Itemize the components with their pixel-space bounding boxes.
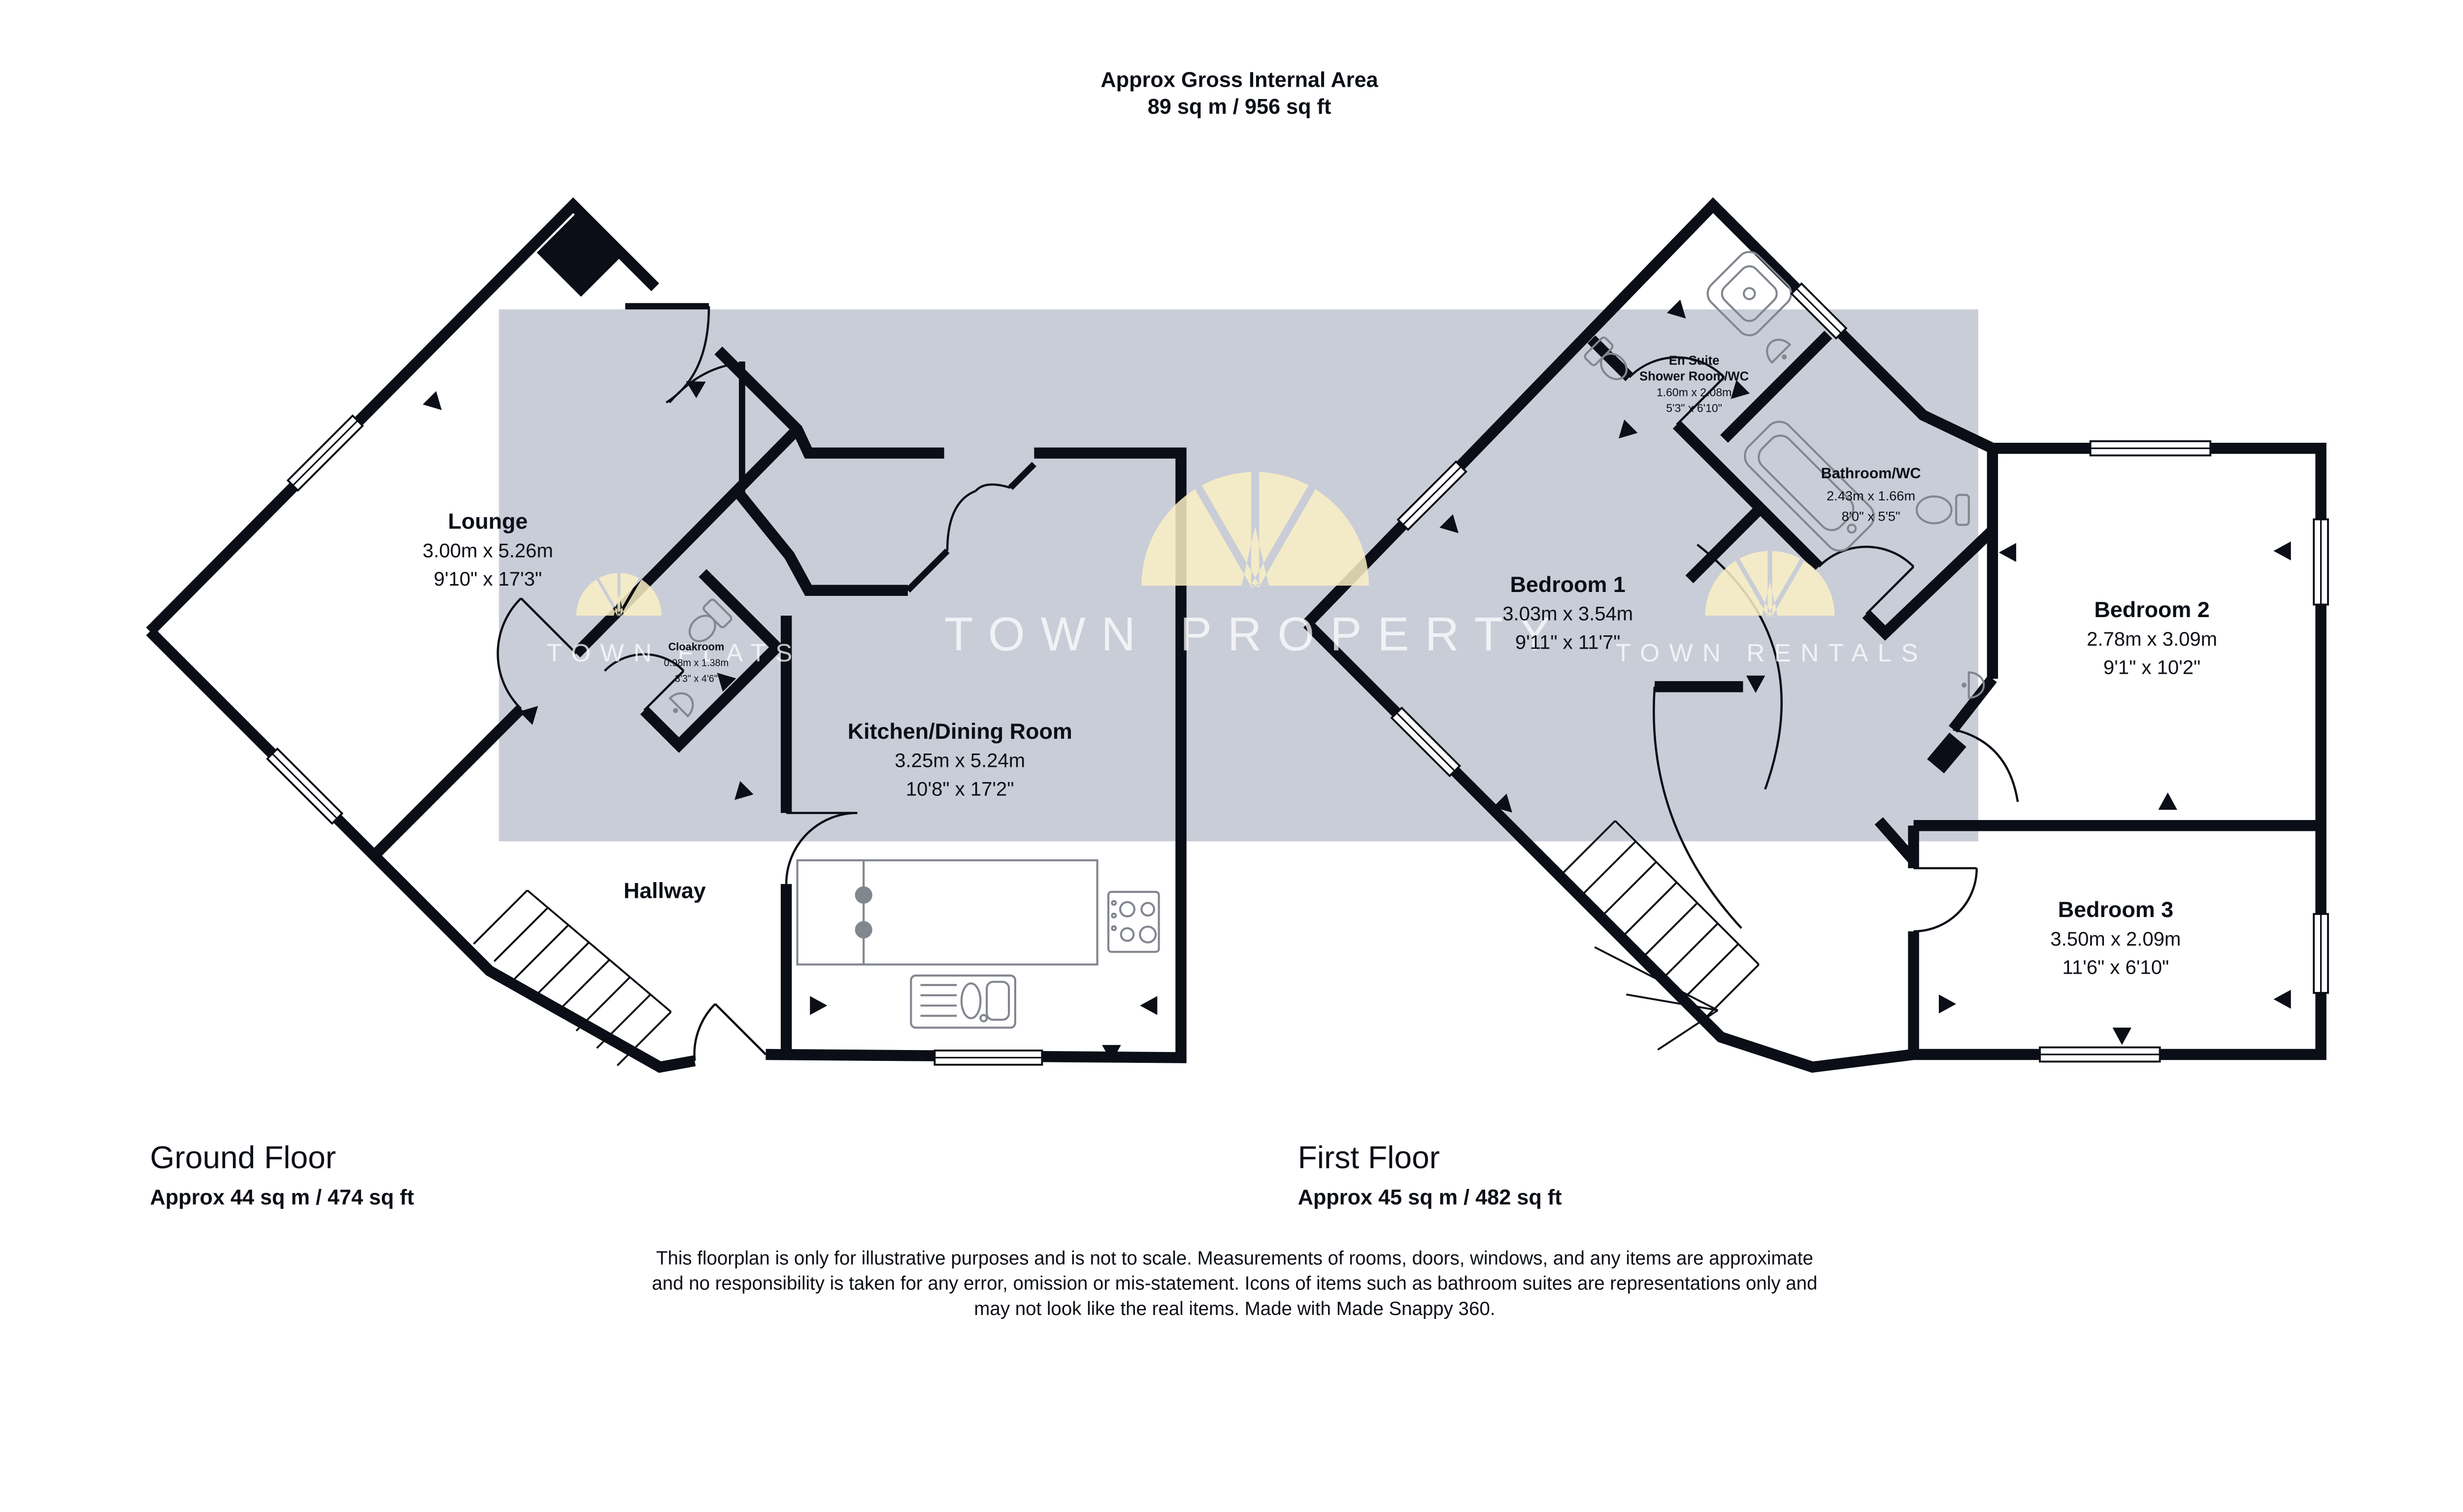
room-dims-kitchen-metric: 3.25m x 5.24m	[895, 750, 1025, 772]
window	[2040, 1048, 2160, 1062]
window	[2314, 519, 2328, 604]
door-arrow-icon	[2273, 541, 2291, 560]
disclaimer-line2: and no responsibility is taken for any e…	[652, 1273, 1817, 1294]
floorplan-page: TOWN FLATS TOWN PROPERTY TOWN RENTALS Lo…	[0, 0, 2463, 1348]
first-floor-label: First Floor	[1298, 1140, 1440, 1175]
ground-floor-area: Approx 44 sq m / 474 sq ft	[150, 1186, 414, 1210]
room-name-bedroom1: Bedroom 1	[1510, 572, 1626, 597]
door-arrow-icon	[1999, 543, 2016, 562]
footer: Ground Floor Approx 44 sq m / 474 sq ft …	[150, 1140, 1817, 1319]
room-dims-bedroom1-imperial: 9'11" x 11'7"	[1515, 631, 1621, 653]
room-name-bathroom: Bathroom/WC	[1821, 465, 1921, 482]
window	[288, 416, 363, 491]
watermark-right: TOWN RENTALS	[1615, 639, 1927, 667]
room-dims-lounge-imperial: 9'10" x 17'3"	[434, 568, 542, 590]
door-arrow-icon	[2273, 990, 2291, 1009]
room-dims-bathroom-imperial: 8'0" x 5'5"	[1842, 509, 1900, 524]
room-dims-bedroom3-imperial: 11'6" x 6'10"	[2063, 957, 2169, 979]
disclaimer-line1: This floorplan is only for illustrative …	[656, 1248, 1813, 1269]
bedroom3-door-arc	[1914, 868, 1977, 931]
first-floor-area: Approx 45 sq m / 482 sq ft	[1298, 1186, 1562, 1210]
header: Approx Gross Internal Area 89 sq m / 956…	[1100, 68, 1378, 118]
window	[2091, 441, 2211, 456]
room-dims-cloakroom-imperial: 3'3" x 4'6"	[675, 674, 718, 685]
room-dims-lounge-metric: 3.00m x 5.26m	[423, 540, 553, 561]
kitchen-table	[798, 860, 1098, 965]
room-dims-bedroom1-metric: 3.03m x 3.54m	[1502, 603, 1633, 625]
watermark-center: TOWN PROPERTY	[944, 608, 1566, 661]
door-arrow-icon	[1140, 996, 1157, 1015]
room-name-ensuite-line2: Shower Room/WC	[1639, 369, 1749, 383]
room-name-bedroom3: Bedroom 3	[2058, 897, 2173, 922]
hob-icon	[1108, 892, 1159, 952]
door-arrow-icon	[810, 996, 827, 1015]
page-title-line2: 89 sq m / 956 sq ft	[1148, 95, 1331, 119]
room-name-lounge: Lounge	[448, 509, 528, 534]
window	[2314, 914, 2328, 993]
window	[267, 749, 342, 823]
room-name-bedroom2: Bedroom 2	[2094, 597, 2209, 622]
room-name-ensuite-line1: En Suite	[1669, 354, 1720, 367]
door-arrow-icon	[2112, 1028, 2131, 1045]
kitchen-sink-icon	[911, 976, 1015, 1028]
disclaimer-line3: may not look like the real items. Made w…	[974, 1298, 1495, 1319]
room-dims-bathroom-metric: 2.43m x 1.66m	[1827, 488, 1915, 503]
room-name-cloakroom: Cloakroom	[668, 641, 725, 653]
floorplan-image: TOWN FLATS TOWN PROPERTY TOWN RENTALS Lo…	[0, 0, 2463, 1348]
room-name-kitchen: Kitchen/Dining Room	[848, 719, 1072, 744]
front-door-arc	[695, 1004, 766, 1060]
ground-floor-label: Ground Floor	[150, 1140, 336, 1175]
door-arrow-icon	[423, 391, 448, 417]
door-arrow-icon	[2158, 792, 2177, 810]
door-arrow-icon	[1939, 994, 1956, 1013]
window	[934, 1051, 1042, 1065]
room-dims-cloakroom-metric: 0.98m x 1.38m	[664, 658, 729, 669]
room-dims-kitchen-imperial: 10'8" x 17'2"	[906, 778, 1014, 800]
room-dims-ensuite-metric: 1.60m x 2.08m	[1657, 386, 1732, 398]
room-dims-bedroom2-imperial: 9'1" x 10'2"	[2103, 657, 2200, 679]
room-dims-ensuite-imperial: 5'3" x 6'10"	[1666, 402, 1722, 415]
page-title-line1: Approx Gross Internal Area	[1100, 68, 1378, 92]
room-dims-bedroom2-metric: 2.78m x 3.09m	[2087, 628, 2217, 650]
room-name-hallway: Hallway	[624, 878, 706, 903]
room-dims-bedroom3-metric: 3.50m x 2.09m	[2050, 928, 2181, 950]
